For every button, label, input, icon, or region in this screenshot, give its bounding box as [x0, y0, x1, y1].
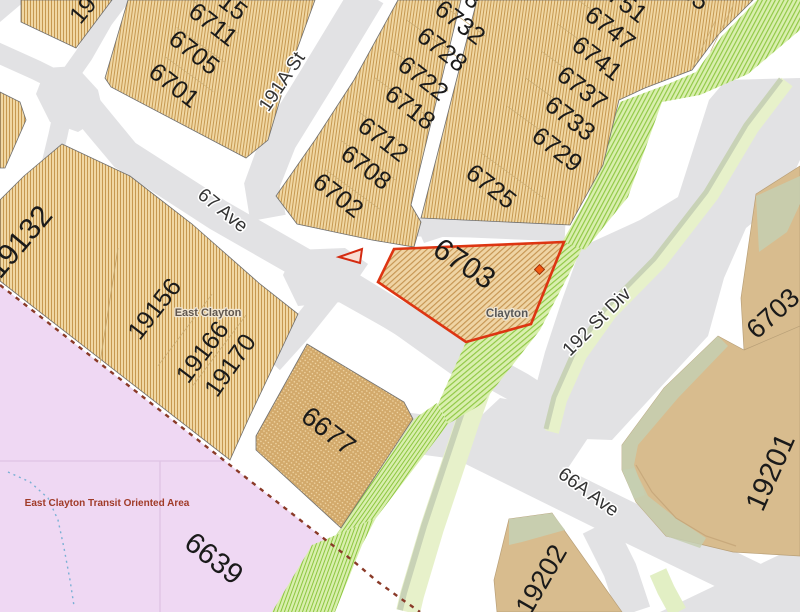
- svg-text:East Clayton: East Clayton: [175, 307, 242, 319]
- svg-text:Clayton: Clayton: [486, 308, 528, 320]
- svg-text:East Clayton Transit Oriented: East Clayton Transit Oriented Area: [25, 498, 190, 509]
